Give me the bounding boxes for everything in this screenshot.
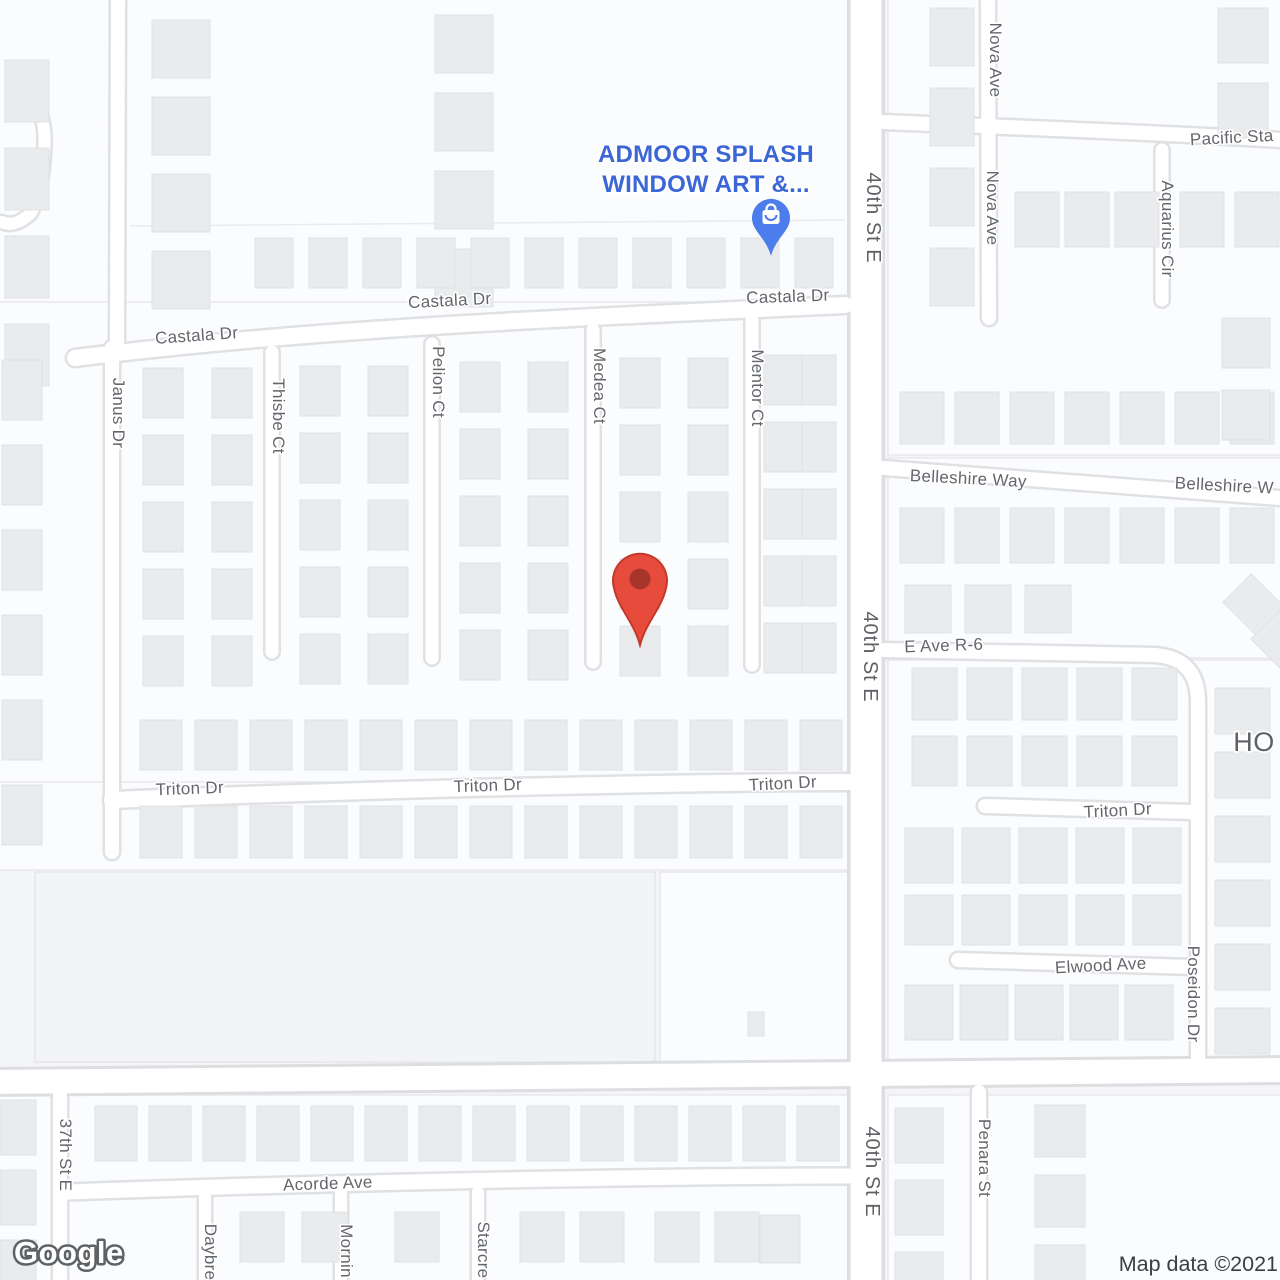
building-footprint (1076, 828, 1124, 883)
building-footprint (895, 1108, 943, 1163)
street-label: Triton Dr (1083, 799, 1152, 822)
building-footprint (240, 1212, 284, 1262)
building-footprint (435, 171, 493, 229)
building-footprint (635, 806, 677, 858)
street-label: Daybre (201, 1224, 220, 1280)
building-footprint (1115, 192, 1159, 247)
building-footprint (528, 429, 568, 479)
building-footprint (912, 668, 957, 720)
building-footprint (460, 429, 500, 479)
building-footprint (905, 585, 951, 633)
building-footprint (0, 1100, 36, 1155)
building-footprint (435, 15, 493, 73)
building-footprint (305, 720, 347, 770)
building-footprint (748, 1012, 764, 1036)
street-label: Castala Dr (746, 286, 830, 308)
building-footprint (528, 630, 568, 680)
building-footprint (152, 97, 210, 155)
poi-name-line1[interactable]: ADMOOR SPLASH (598, 141, 814, 168)
building-footprint (300, 366, 340, 416)
building-footprint (203, 1106, 245, 1161)
building-footprint (470, 806, 512, 858)
building-footprint (895, 1252, 943, 1280)
building-footprint (525, 720, 567, 770)
building-footprint (764, 355, 802, 405)
building-footprint (1019, 895, 1067, 945)
building-footprint (905, 985, 953, 1040)
building-footprint (2, 360, 42, 420)
street-label: Mornin (337, 1224, 356, 1278)
building-footprint (1065, 392, 1109, 444)
building-footprint (1230, 508, 1274, 563)
building-footprint (1035, 1105, 1085, 1157)
building-footprint (967, 668, 1012, 720)
building-footprint (1215, 752, 1270, 798)
building-footprint (905, 895, 953, 945)
building-footprint (1010, 392, 1054, 444)
building-footprint (1010, 508, 1054, 563)
building-footprint (581, 1106, 623, 1161)
building-footprint (1019, 828, 1067, 883)
building-footprint (967, 736, 1012, 786)
building-footprint (395, 1212, 439, 1262)
building-footprint (620, 492, 660, 542)
building-footprint (1180, 192, 1224, 247)
building-footprint (417, 238, 455, 288)
building-footprint (1235, 192, 1279, 247)
building-footprint (1175, 392, 1219, 444)
building-footprint (473, 1106, 515, 1161)
building-footprint (743, 1106, 785, 1161)
building-footprint (250, 720, 292, 770)
building-footprint (580, 1212, 624, 1262)
building-footprint (0, 1170, 36, 1225)
building-footprint (311, 1106, 353, 1161)
building-footprint (1077, 736, 1122, 786)
building-footprint (2, 615, 42, 675)
building-footprint (1022, 736, 1067, 786)
building-footprint (579, 238, 617, 288)
building-footprint (365, 1106, 407, 1161)
building-footprint (5, 60, 49, 122)
street-label: Pelion Ct (429, 346, 448, 418)
pin-inner-dot (630, 569, 651, 590)
building-footprint (149, 1106, 191, 1161)
building-footprint (797, 1106, 839, 1161)
street-label: 37th St E (56, 1119, 75, 1192)
street-label: Acorde Ave (283, 1172, 373, 1194)
building-footprint (419, 1106, 461, 1161)
building-footprint (1015, 985, 1063, 1040)
street-label: Aquarius Cir (1158, 180, 1177, 277)
building-footprint (95, 1106, 137, 1161)
building-footprint (1120, 508, 1164, 563)
street-label: HO (1233, 727, 1275, 757)
building-footprint (965, 585, 1011, 633)
building-footprint (152, 174, 210, 232)
building-footprint (212, 502, 252, 552)
building-footprint (635, 720, 677, 770)
building-footprint (930, 88, 974, 146)
building-footprint (471, 238, 509, 288)
street-label: Penara St (975, 1119, 994, 1197)
building-footprint (528, 496, 568, 546)
building-footprint (764, 489, 802, 539)
building-footprint (2, 445, 42, 505)
building-footprint (764, 422, 802, 472)
street-label: Medea Ct (590, 348, 609, 424)
building-footprint (140, 806, 182, 858)
building-footprint (470, 720, 512, 770)
building-footprint (143, 636, 183, 686)
building-footprint (1076, 895, 1124, 945)
building-footprint (795, 238, 833, 288)
building-footprint (688, 358, 728, 408)
map-canvas[interactable]: Castala DrCastala DrCastala DrJanus DrTh… (0, 0, 1280, 1280)
building-footprint (300, 567, 340, 617)
street-label: E Ave R-6 (904, 635, 984, 657)
building-footprint (912, 736, 957, 786)
building-footprint (930, 168, 974, 226)
building-footprint (152, 251, 210, 309)
building-footprint (1132, 668, 1177, 720)
building-footprint (363, 238, 401, 288)
building-footprint (1065, 192, 1109, 247)
building-footprint (1132, 736, 1177, 786)
building-footprint (300, 433, 340, 483)
building-footprint (5, 236, 49, 298)
building-footprint (5, 148, 49, 210)
building-footprint (212, 569, 252, 619)
empty-lot-block (35, 872, 655, 1062)
google-logo[interactable]: Google (14, 1235, 124, 1270)
building-footprint (368, 634, 408, 684)
building-footprint (309, 238, 347, 288)
building-footprint (962, 895, 1010, 945)
building-footprint (368, 433, 408, 483)
building-footprint (415, 806, 457, 858)
building-footprint (415, 720, 457, 770)
building-footprint (1215, 944, 1270, 990)
map-attribution: Map data ©2021 (1119, 1252, 1278, 1276)
street-label: Triton Dr (155, 778, 224, 799)
building-footprint (143, 569, 183, 619)
building-footprint (1133, 828, 1181, 883)
street-label: Thisbe Ct (269, 378, 288, 453)
building-footprint (802, 623, 836, 673)
building-footprint (360, 720, 402, 770)
building-footprint (960, 985, 1008, 1040)
street-label: Nova Ave (986, 23, 1005, 98)
building-footprint (690, 806, 732, 858)
building-footprint (528, 362, 568, 412)
building-footprint (1215, 1008, 1270, 1054)
building-footprint (2, 530, 42, 590)
building-footprint (620, 358, 660, 408)
building-footprint (152, 20, 210, 78)
street-label: Starcre (474, 1222, 493, 1279)
building-footprint (955, 392, 999, 444)
building-footprint (905, 828, 953, 883)
building-footprint (764, 556, 802, 606)
building-footprint (688, 626, 728, 676)
building-footprint (435, 93, 493, 151)
building-footprint (1218, 8, 1268, 63)
building-footprint (900, 508, 944, 563)
building-footprint (257, 1106, 299, 1161)
building-footprint (687, 238, 725, 288)
street-label: Janus Dr (109, 378, 128, 448)
building-footprint (527, 1106, 569, 1161)
street-label: 40th St E (862, 172, 884, 263)
building-footprint (300, 500, 340, 550)
building-footprint (305, 806, 347, 858)
street-label: Mentor Ct (748, 349, 767, 426)
building-footprint (1175, 508, 1219, 563)
building-footprint (802, 422, 836, 472)
building-footprint (1215, 816, 1270, 862)
building-footprint (255, 238, 293, 288)
building-footprint (195, 806, 237, 858)
building-footprint (300, 634, 340, 684)
building-footprint (688, 559, 728, 609)
building-footprint (1222, 318, 1270, 368)
building-footprint (620, 425, 660, 475)
building-footprint (802, 355, 836, 405)
building-footprint (2, 700, 42, 760)
building-footprint (250, 806, 292, 858)
building-footprint (140, 720, 182, 770)
building-footprint (460, 630, 500, 680)
building-footprint (1070, 985, 1118, 1040)
street-label: Triton Dr (453, 775, 522, 796)
building-footprint (745, 720, 787, 770)
building-footprint (195, 720, 237, 770)
building-footprint (930, 8, 974, 66)
building-footprint (1015, 192, 1059, 247)
building-footprint (962, 828, 1010, 883)
building-footprint (143, 368, 183, 418)
street-label: Poseidon Dr (1184, 946, 1203, 1043)
building-footprint (655, 1212, 699, 1262)
building-footprint (525, 238, 563, 288)
building-footprint (460, 362, 500, 412)
building-footprint (955, 508, 999, 563)
building-footprint (143, 502, 183, 552)
building-footprint (1035, 1175, 1085, 1227)
building-footprint (895, 1180, 943, 1235)
street-label: 40th St E (859, 611, 881, 702)
building-footprint (1065, 508, 1109, 563)
building-footprint (1215, 880, 1270, 926)
building-footprint (2, 785, 42, 845)
building-footprint (212, 368, 252, 418)
building-footprint (760, 1215, 800, 1263)
map-tiles: Castala DrCastala DrCastala DrJanus DrTh… (0, 0, 1280, 1280)
building-footprint (368, 366, 408, 416)
building-footprint (1022, 668, 1067, 720)
building-footprint (360, 806, 402, 858)
building-footprint (1077, 668, 1122, 720)
poi-name-line2[interactable]: WINDOW ART &... (602, 171, 809, 198)
building-footprint (688, 425, 728, 475)
street-label: Triton Dr (748, 772, 817, 795)
building-footprint (689, 1106, 731, 1161)
building-footprint (688, 492, 728, 542)
building-footprint (690, 720, 732, 770)
building-footprint (802, 489, 836, 539)
building-footprint (1025, 585, 1071, 633)
building-footprint (1035, 1245, 1085, 1280)
building-footprint (1125, 985, 1173, 1040)
building-footprint (745, 806, 787, 858)
building-footprint (715, 1212, 759, 1262)
building-footprint (1222, 390, 1270, 440)
building-footprint (460, 563, 500, 613)
building-footprint (525, 806, 567, 858)
building-footprint (580, 720, 622, 770)
building-footprint (802, 556, 836, 606)
building-footprint (800, 720, 842, 770)
street-label: 40th St E (861, 1126, 883, 1217)
building-footprint (764, 623, 802, 673)
building-footprint (460, 496, 500, 546)
building-footprint (212, 435, 252, 485)
building-footprint (520, 1212, 564, 1262)
building-footprint (212, 636, 252, 686)
building-footprint (1120, 392, 1164, 444)
building-footprint (633, 238, 671, 288)
street-label: Nova Ave (983, 171, 1002, 246)
building-footprint (1133, 895, 1181, 945)
building-footprint (635, 1106, 677, 1161)
building-footprint (930, 248, 974, 306)
building-footprint (143, 435, 183, 485)
building-footprint (900, 392, 944, 444)
building-footprint (368, 500, 408, 550)
building-footprint (368, 567, 408, 617)
building-footprint (580, 806, 622, 858)
building-footprint (800, 806, 842, 858)
building-footprint (528, 563, 568, 613)
